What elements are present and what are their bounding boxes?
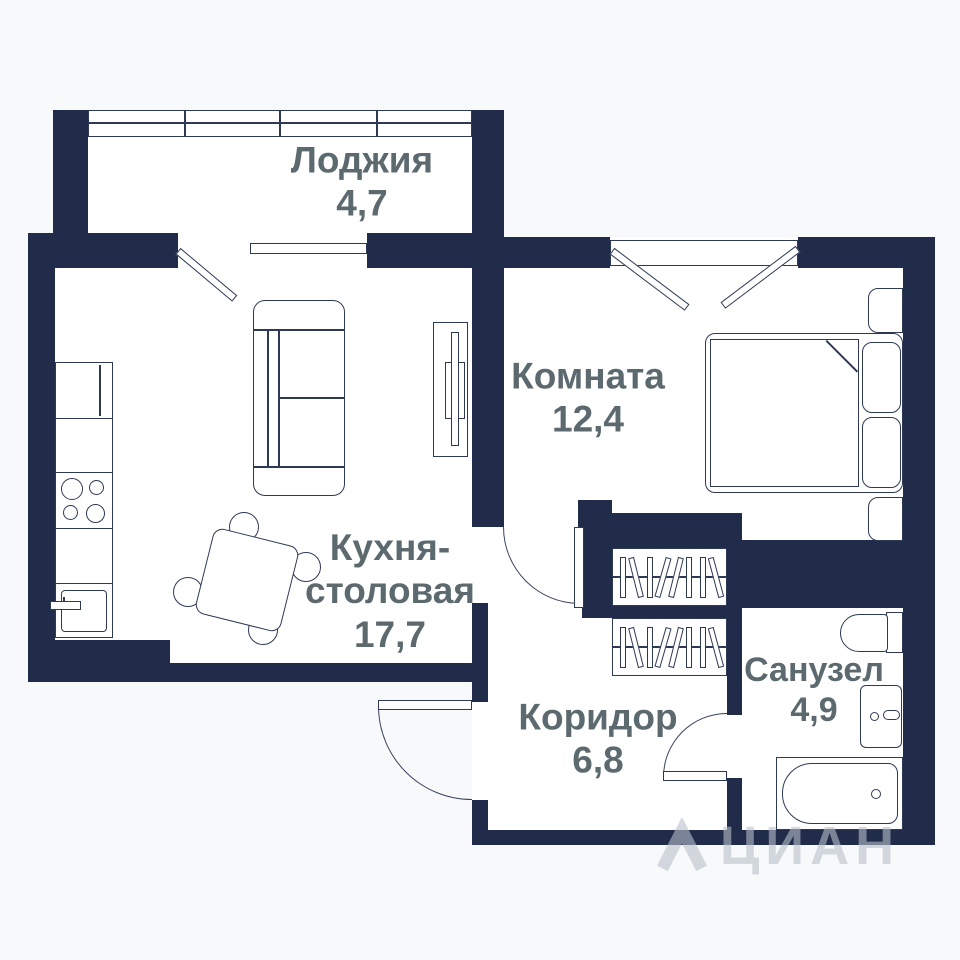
stove-burner-2 — [89, 480, 104, 495]
wall-kitchen-bedroom-divider — [472, 110, 504, 527]
wall-bathroom-left-upper — [727, 548, 742, 715]
wall-above-wardrobe — [612, 513, 742, 548]
kitchen-counter-1 — [55, 418, 113, 473]
kitchen-faucet — [50, 601, 81, 610]
wall-bedroom-door-block — [578, 500, 612, 527]
label-loggia-name: Лоджия — [291, 139, 433, 182]
kitchen-sink-basin — [61, 590, 107, 632]
watermark-text: ЦИАН — [720, 815, 900, 877]
stove-burner-1 — [61, 478, 83, 500]
wall-under-loggia-right — [367, 233, 472, 268]
label-kitchen: Кухня- столовая 17,7 — [305, 526, 475, 656]
nightstand-bottom — [868, 497, 903, 541]
label-kitchen-area: 17,7 — [305, 613, 475, 656]
label-kitchen-line2: столовая — [305, 569, 475, 612]
kitchen-faucet-handle — [63, 597, 65, 602]
label-loggia-area: 4,7 — [291, 182, 433, 225]
loggia-window — [88, 110, 472, 137]
bedroom-window — [610, 240, 798, 266]
bathtub-drain — [871, 789, 881, 799]
label-corridor-area: 6,8 — [518, 739, 677, 782]
label-bedroom-name: Комната — [511, 355, 665, 398]
label-bedroom-area: 12,4 — [511, 398, 665, 441]
entrance-door-leaf — [378, 700, 472, 710]
kitchen-window — [250, 243, 367, 254]
wardrobe-1-hangers — [620, 556, 719, 598]
wall-kitchen-bottom — [170, 663, 472, 682]
watermark: ЦИАН — [632, 804, 922, 888]
stove-burner-4 — [86, 504, 105, 523]
label-bathroom: Санузел 4,9 — [744, 651, 884, 731]
sofa-armrest-bottom-line — [253, 466, 345, 468]
wall-outer-left — [28, 268, 55, 682]
wall-kitchen-bottom-deep — [28, 640, 170, 682]
toilet-tank — [886, 612, 903, 653]
toilet-bowl — [840, 614, 888, 652]
floor-plan: Лоджия 4,7 Комната 12,4 Кухня- столовая … — [0, 0, 960, 960]
kitchen-counter-2 — [55, 528, 113, 584]
bathroom-sink-faucet — [883, 710, 900, 720]
pillow-2 — [862, 417, 901, 488]
wall-under-loggia-left — [28, 233, 178, 268]
wall-between-wardrobes — [582, 605, 727, 618]
loggia-window-divider-3 — [376, 111, 378, 136]
cian-logo-icon — [654, 818, 710, 874]
bed-blanket — [710, 339, 859, 487]
wall-bathroom-top — [727, 540, 903, 608]
entrance-door-arc — [378, 706, 472, 800]
wardrobe-2-hangers — [620, 626, 719, 668]
stove-burner-3 — [63, 505, 78, 520]
wall-bedroom-top-left — [504, 237, 610, 268]
fridge — [55, 362, 113, 419]
label-corridor-name: Коридор — [518, 696, 677, 739]
label-bathroom-name: Санузел — [744, 651, 884, 691]
tv-screen — [451, 332, 459, 446]
label-bedroom: Комната 12,4 — [511, 355, 665, 442]
wall-loggia-left — [53, 110, 88, 237]
nightstand-top — [868, 288, 903, 333]
loggia-window-divider-1 — [184, 111, 186, 136]
pillow-1 — [862, 342, 901, 413]
fridge-door-line — [99, 365, 101, 416]
label-loggia: Лоджия 4,7 — [291, 139, 433, 226]
label-corridor: Коридор 6,8 — [518, 696, 677, 783]
bedroom-door-leaf — [574, 527, 584, 608]
label-bathroom-area: 4,9 — [744, 691, 884, 731]
loggia-window-divider-2 — [279, 111, 281, 136]
label-kitchen-line1: Кухня- — [305, 526, 475, 569]
sofa-seat-line — [279, 397, 345, 399]
wall-outer-right — [903, 237, 935, 845]
entrance-opening-floor — [472, 700, 488, 800]
sofa-backrest-line-1 — [267, 330, 269, 466]
